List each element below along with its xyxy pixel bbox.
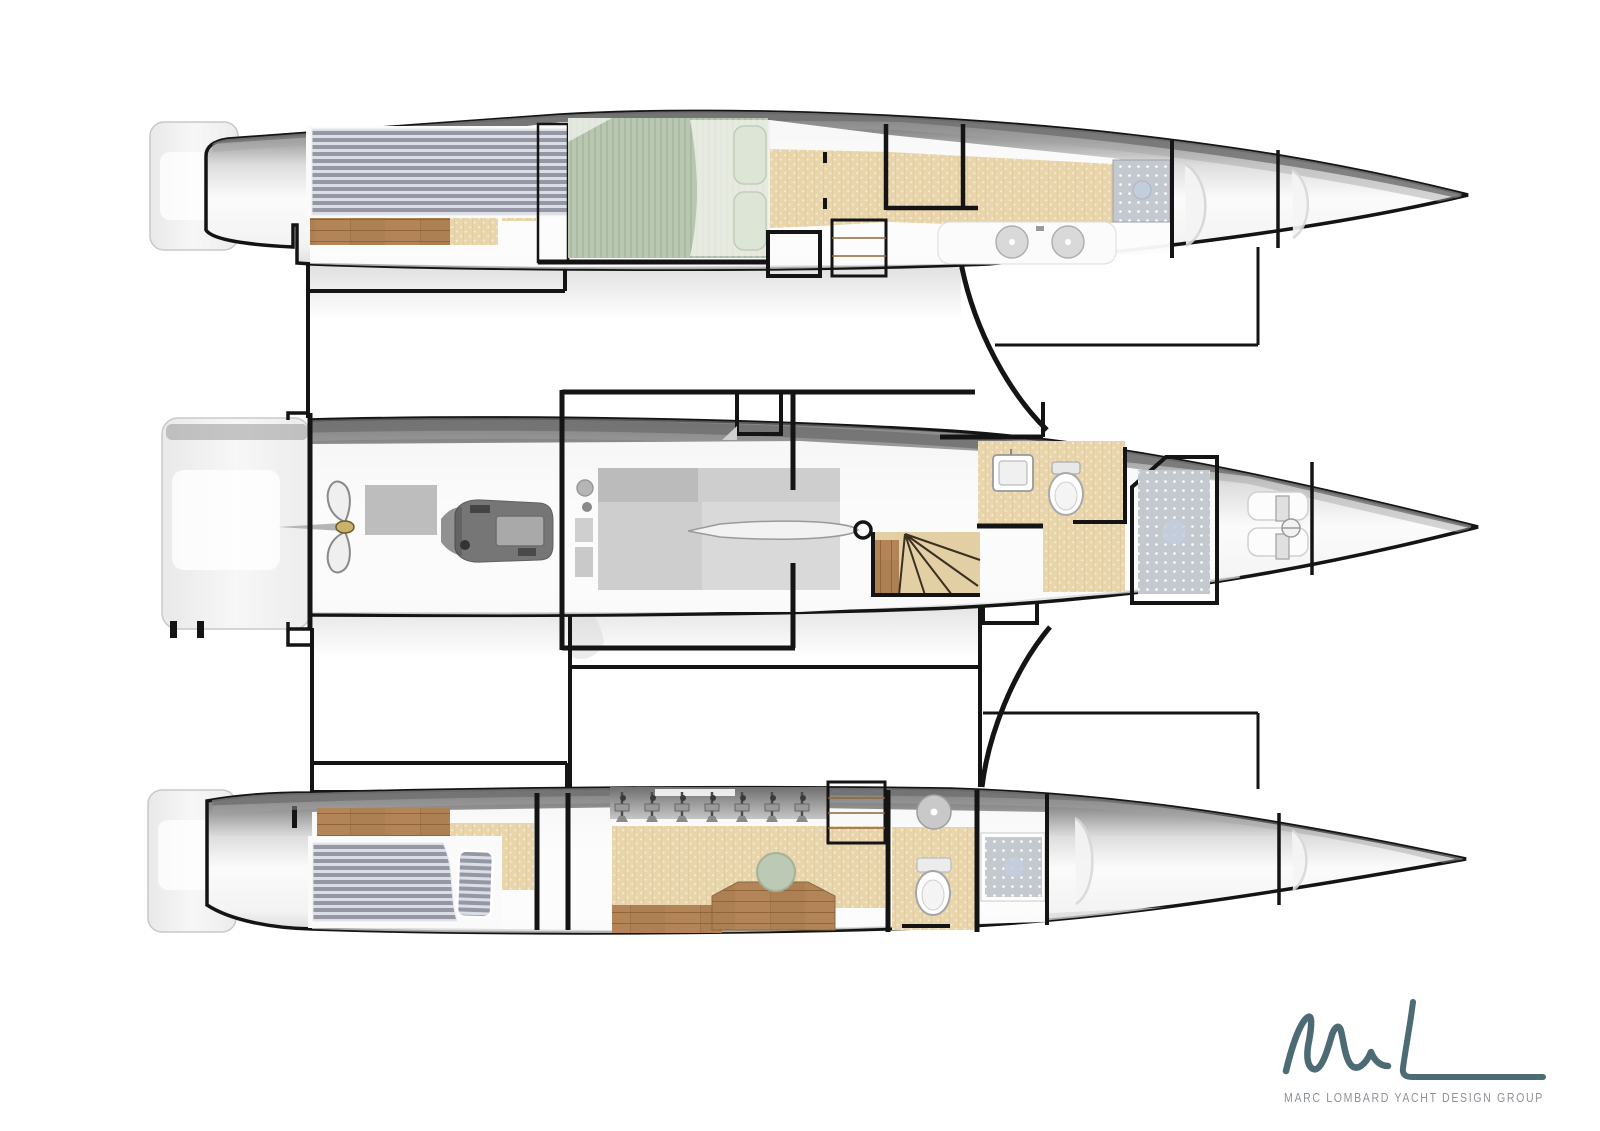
foredeck-beam-line <box>983 713 1258 789</box>
aft-double-berth <box>312 129 606 215</box>
head-floor <box>1043 524 1125 592</box>
pillow <box>734 126 766 184</box>
wood-floor <box>612 905 722 933</box>
rudder-fitting <box>170 621 177 638</box>
sink-drain <box>931 809 938 816</box>
shower-drain <box>1162 520 1186 544</box>
desk-seat <box>757 853 795 891</box>
galley-fixture <box>575 518 593 542</box>
main-hull <box>162 390 1478 650</box>
transom-coaming <box>166 424 308 440</box>
starboard-float-hull <box>148 782 1466 933</box>
deck-bow-curve <box>982 627 1050 787</box>
shower-drain <box>1133 181 1151 199</box>
galley-fixture <box>575 547 593 577</box>
port-float-hull <box>150 111 1468 276</box>
engine-hatch <box>365 485 437 535</box>
locker-rail <box>655 789 735 796</box>
ml-monogram <box>1286 1017 1388 1071</box>
engine <box>441 500 553 562</box>
shower-cabin <box>981 833 1045 901</box>
logo-text: MARC LOMBARD YACHT DESIGN GROUP <box>1284 1090 1544 1105</box>
plan-sheet: MARC LOMBARD YACHT DESIGN GROUP <box>0 0 1600 1131</box>
trimaran-plan-canvas: MARC LOMBARD YACHT DESIGN GROUP <box>0 0 1600 1131</box>
faucet <box>1036 226 1044 231</box>
aft-wing-deck-starboard <box>288 597 1258 792</box>
shower-cabin <box>1132 457 1217 603</box>
aft-double-berth <box>313 843 457 921</box>
ml-monogram-l <box>1403 1002 1543 1077</box>
designer-logo: MARC LOMBARD YACHT DESIGN GROUP <box>1284 1002 1544 1105</box>
shower-drain <box>1004 857 1024 877</box>
pillow <box>457 850 493 917</box>
curved-staircase <box>873 532 980 595</box>
toilet <box>1049 462 1083 515</box>
pillow <box>734 192 766 250</box>
rudder-fitting <box>197 621 204 638</box>
toilet <box>916 858 951 915</box>
sink-drain <box>1065 239 1071 245</box>
transom-step <box>172 470 280 570</box>
sink-drain <box>1009 239 1015 245</box>
galley-fixture <box>582 502 592 512</box>
head-sink <box>993 449 1033 491</box>
galley-fixture <box>577 480 593 496</box>
